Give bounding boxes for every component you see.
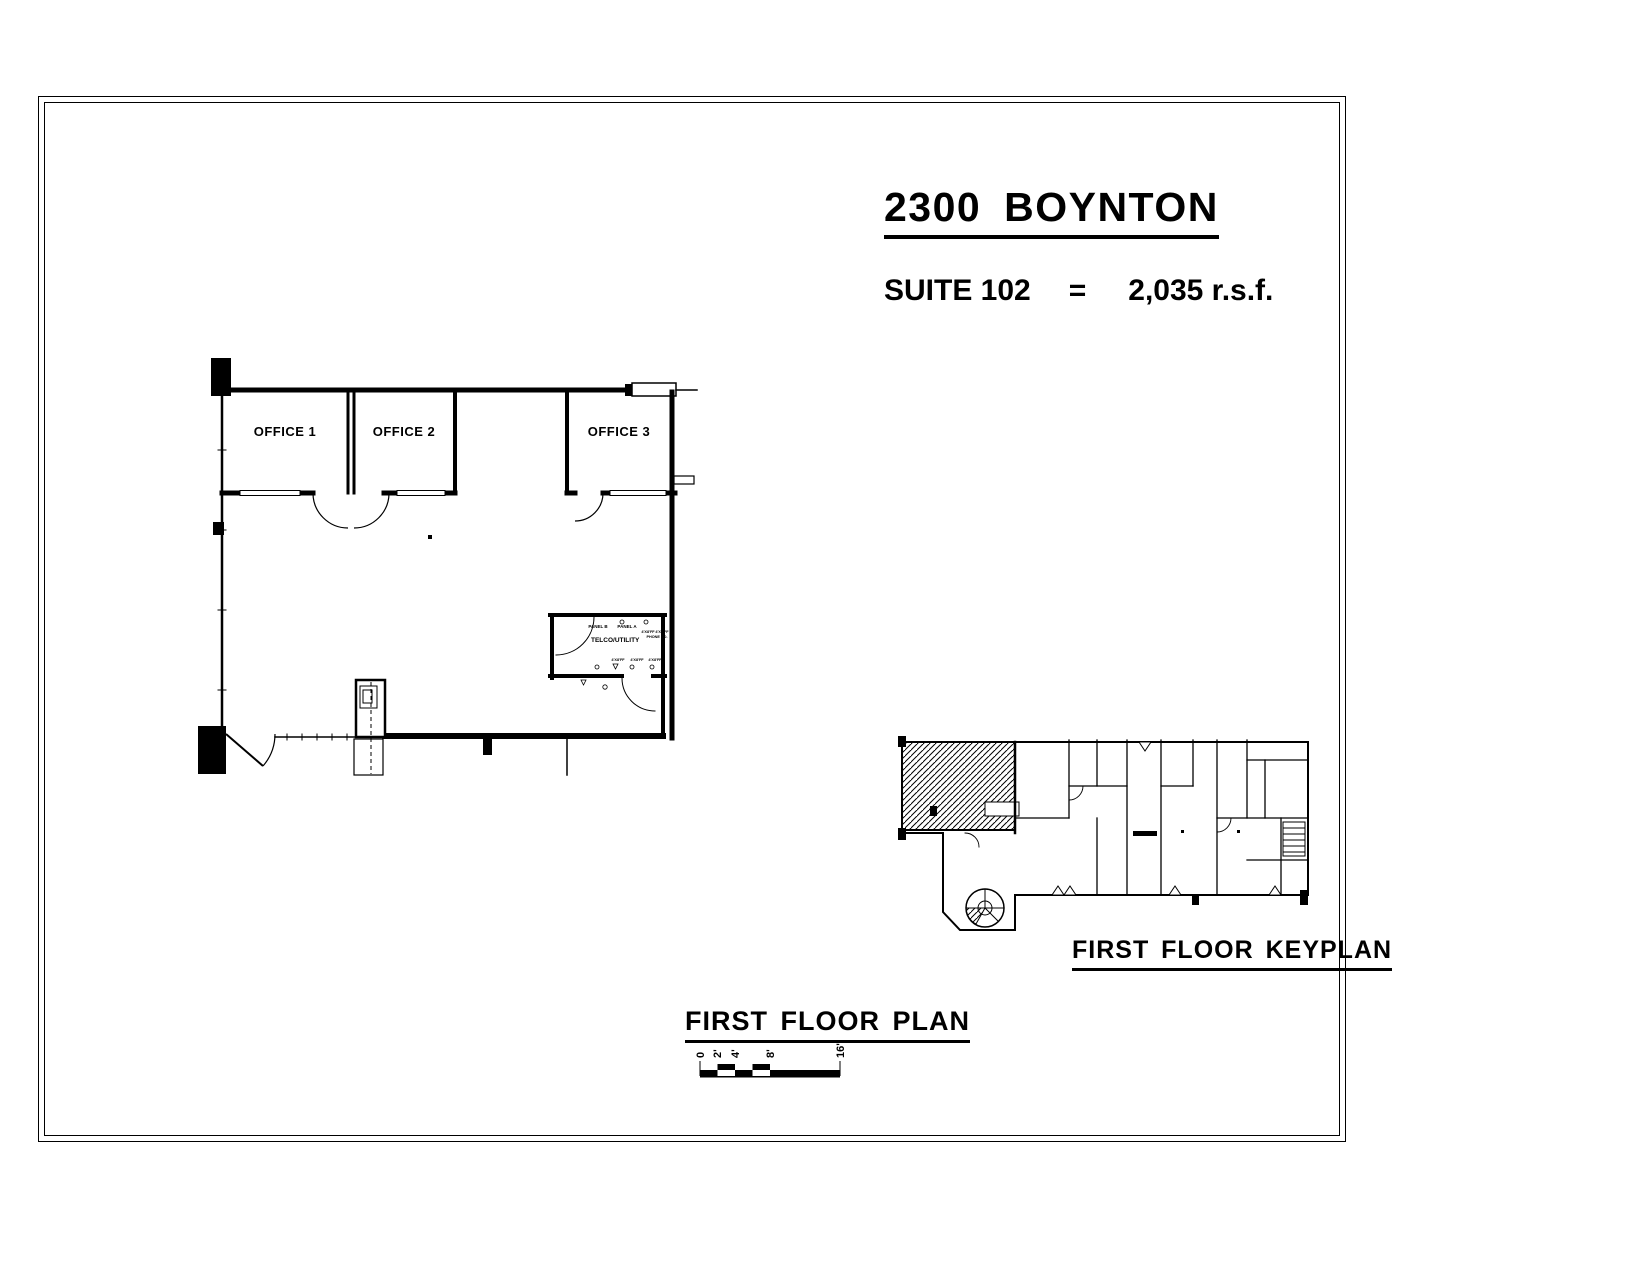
- door-leaf-top-right: [632, 383, 676, 396]
- data-symbol: [613, 664, 618, 669]
- office-1-label: OFFICE 1: [254, 424, 317, 439]
- graphic-scale-bar: 0 2' 4' 8' 16': [690, 1028, 860, 1088]
- suite-number: SUITE 102: [884, 274, 1031, 308]
- wall-stub-left: [213, 522, 224, 535]
- office-3-label: OFFICE 3: [588, 424, 651, 439]
- panel-b-label: PANEL B: [588, 624, 608, 629]
- scale-blocks: [700, 1061, 840, 1078]
- plywood-note: 4'X8'FF: [655, 630, 669, 634]
- phone-board-label: PHONE BD.: [646, 635, 667, 639]
- column-bottom-left: [198, 726, 226, 774]
- plan-labels: OFFICE 1 OFFICE 2 OFFICE 3 PANEL B PANEL…: [254, 424, 670, 662]
- equals-sign: =: [1069, 274, 1087, 308]
- sidelite-office-2: [397, 491, 445, 496]
- outlet-symbol: [595, 665, 599, 669]
- scale-label-2: 2': [712, 1049, 724, 1058]
- outlet-symbol: [603, 685, 607, 689]
- keyplan-building: [898, 736, 1308, 930]
- spiral-stair: [966, 889, 1004, 927]
- scale-label-8: 8': [765, 1049, 777, 1058]
- outlet-symbol: [644, 620, 648, 624]
- closet-fixture: [354, 680, 385, 775]
- suite-area-line: SUITE 102 = 2,035 r.s.f.: [884, 274, 1273, 308]
- telco-room-label: TELCO/UTILITY: [591, 637, 640, 644]
- scale-label-16: 16': [835, 1043, 847, 1058]
- plywood-note: 4'X8'FF: [630, 658, 644, 662]
- scale-label-0: 0: [695, 1052, 707, 1058]
- door-swing-office-3: [575, 493, 603, 521]
- door-jamb: [625, 384, 632, 396]
- building-title: 2300 BOYNTON: [884, 184, 1219, 239]
- office-2-label: OFFICE 2: [373, 424, 436, 439]
- exit-door-swing: [622, 678, 655, 711]
- outlet-symbol: [650, 665, 654, 669]
- panel-a-label: PANEL A: [617, 624, 637, 629]
- suite-doors: [226, 493, 603, 766]
- plywood-note: 4'X8'FF: [648, 658, 662, 662]
- first-floor-plan-drawing: OFFICE 1 OFFICE 2 OFFICE 3 PANEL B PANEL…: [185, 330, 705, 790]
- outlet-symbol: [630, 665, 634, 669]
- stair-treads: [1283, 822, 1305, 856]
- drawing-sheet: 2300 BOYNTON SUITE 102 = 2,035 r.s.f.: [0, 0, 1650, 1275]
- entry-door-swing: [263, 734, 275, 766]
- sidelite-office-1: [240, 491, 300, 496]
- suite-highlight-hatch: [902, 742, 1015, 830]
- entry-door-leaf: [226, 734, 263, 766]
- suite-rsf: 2,035 r.s.f.: [1128, 274, 1273, 308]
- scale-label-4: 4': [730, 1049, 742, 1058]
- data-symbol: [581, 680, 586, 685]
- suite-walls: [198, 358, 697, 775]
- door-swing-office-2: [354, 493, 389, 528]
- floor-outlet: [428, 535, 432, 539]
- sidelite-office-3: [610, 491, 666, 496]
- first-floor-keyplan-drawing: [845, 690, 1315, 940]
- scale-labels: 0 2' 4' 8' 16': [695, 1043, 847, 1058]
- wall-stub-bottom: [483, 739, 492, 755]
- wall-tab-right: [674, 476, 694, 484]
- door-swing-office-1: [313, 493, 348, 528]
- plywood-note: 4'X8'FF: [641, 630, 655, 634]
- plywood-note: 4'X8'FF: [611, 658, 625, 662]
- keyplan-title: FIRST FLOOR KEYPLAN: [1072, 936, 1392, 971]
- telco-door-swing: [556, 617, 594, 655]
